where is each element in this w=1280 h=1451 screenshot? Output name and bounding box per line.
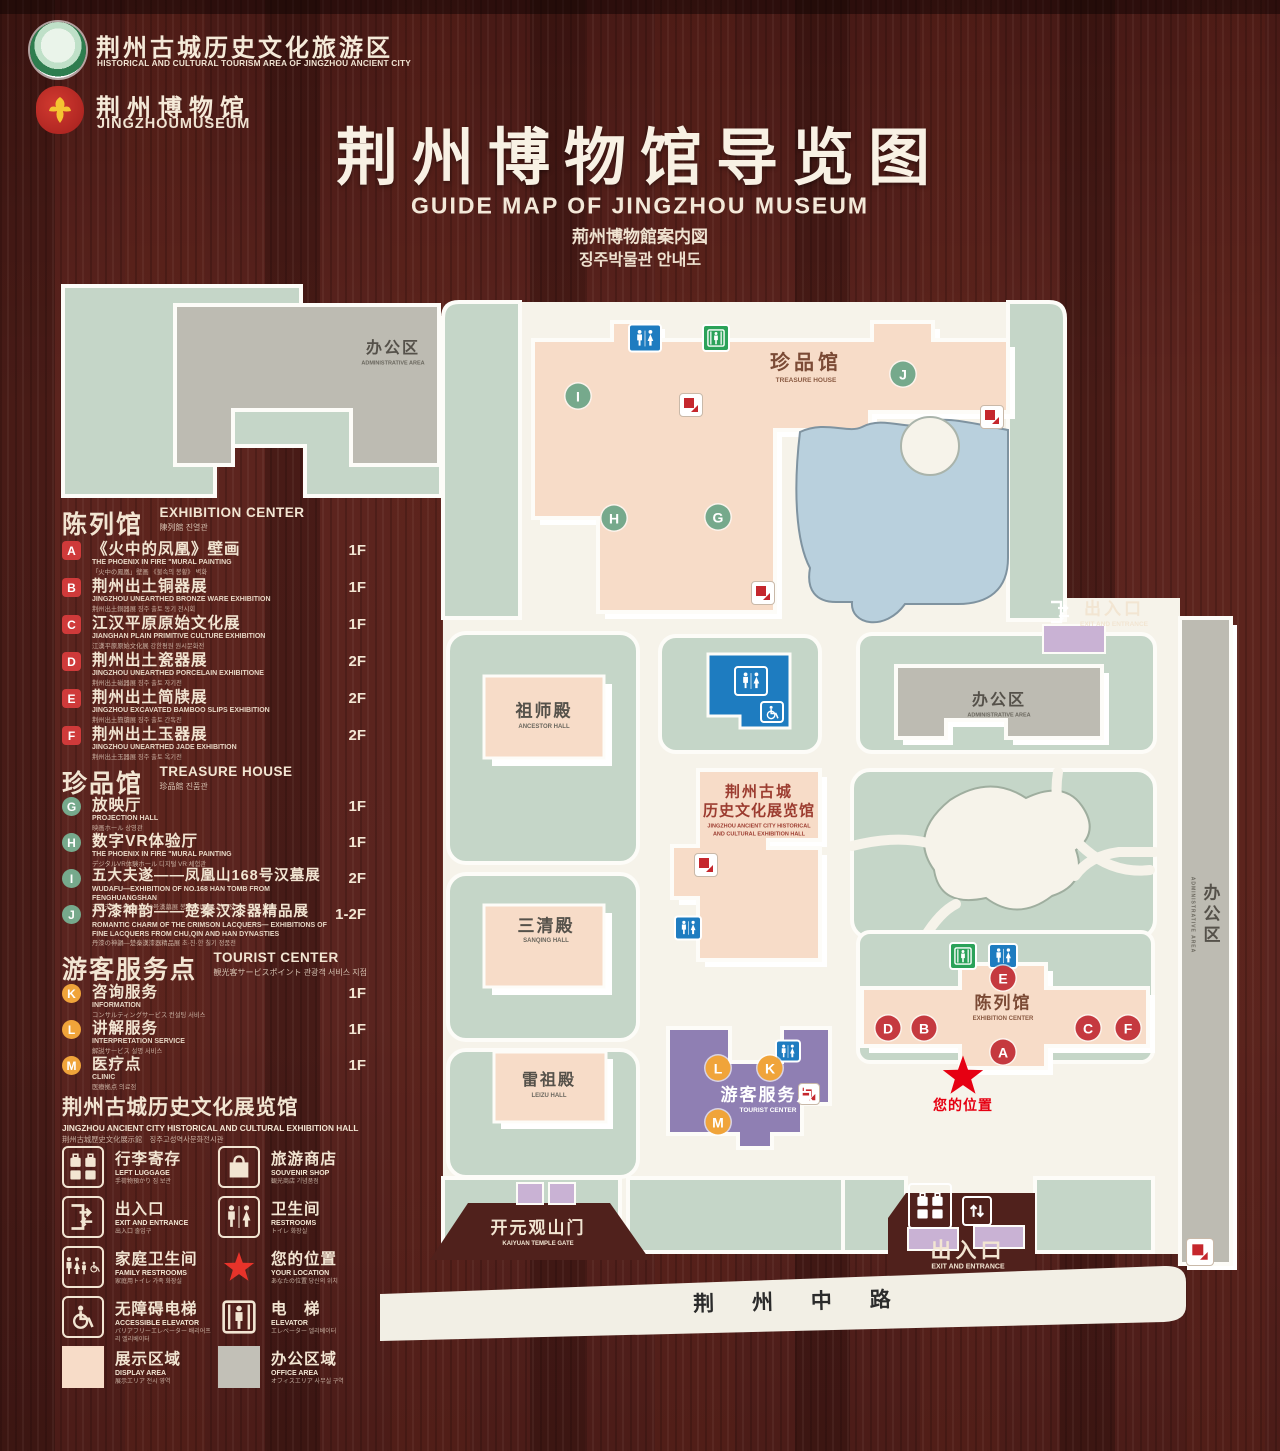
kaiyuan-gate-label: 开元观山门 — [491, 1220, 586, 1237]
hall-note-en: JINGZHOU ANCIENT CITY HISTORICAL AND CUL… — [62, 1123, 368, 1133]
badge-B: B — [62, 578, 81, 597]
icon-cn: 无障碍电梯 — [115, 1297, 212, 1319]
legend-item-B: B 荆州出土铜器展 JINGZHOU UNEARTHED BRONZE WARE… — [62, 578, 368, 613]
item-sub: 「火中の鳳凰」壁画 《불속의 봉황》 벽화 — [92, 569, 330, 577]
item-cn: 五大夫遂——凤凰山168号汉墓展 — [92, 869, 330, 885]
legend-item-L: L 讲解服务 INTERPRETATION SERVICE 解説サービス 설명 … — [62, 1020, 368, 1055]
item-floor: 1-2F — [335, 906, 366, 923]
item-sub: 荆州出土簡牘展 징주 출토 간독전 — [92, 717, 330, 725]
icon-en: YOUR LOCATION — [271, 1270, 368, 1278]
item-sub: 丹漆の神韻—楚秦漢漆器精品展 초·진·한 칠기 정품전 — [92, 940, 330, 948]
item-floor: 2F — [348, 727, 366, 744]
icon-en: FAMILY RESTROOMS — [115, 1270, 212, 1278]
marker-J: J — [891, 362, 916, 387]
section-title-en: TOURIST CENTER — [213, 950, 367, 965]
item-sub: 映画ホール 상영관 — [92, 825, 330, 833]
ancestor-hall-label: 祖师殿 — [516, 703, 573, 720]
section-title-sub: 観光客サービスポイント 관광객 서비스 지점 — [213, 967, 367, 978]
office-strip-label: ADMINISTRATIVE AREA 办公区 — [1190, 877, 1223, 954]
restroom-icon — [734, 666, 768, 696]
badge-J: J — [62, 905, 81, 924]
icon-sub: 出入口 출입구 — [115, 1229, 212, 1236]
item-floor: 1F — [348, 1057, 366, 1074]
treasure-house-label: 珍品馆 — [770, 353, 842, 373]
icon-sub: オフィスエリア 사무실 구역 — [271, 1379, 368, 1386]
item-floor: 1F — [348, 1021, 366, 1038]
legend-item-H: H 数字VR体验厅 THE PHOENIX IN FIRE "MURAL PAI… — [62, 833, 368, 868]
item-sub: 解説サービス 설명 서비스 — [92, 1048, 330, 1056]
item-en: JINGZHOU UNEARTHED JADE EXHIBITION — [92, 744, 330, 753]
marker-G: G — [706, 505, 731, 530]
legend-item-K: K 咨询服务 INFORMATION コンサルティングサービス 컨설팅 서비스 … — [62, 984, 368, 1019]
item-cn: 数字VR体验厅 — [92, 833, 330, 850]
legend-item-E: E 荆州出土简牍展 JINGZHOU EXCAVATED BAMBOO SLIP… — [62, 689, 368, 724]
item-en: PROJECTION HALL — [92, 815, 330, 824]
legend-your-location: 您的位置 YOUR LOCATION あなたの位置 당신의 위치 — [218, 1246, 368, 1294]
exit-bottom-label: 出入口 — [931, 1241, 1006, 1262]
item-cn: 讲解服务 — [92, 1020, 330, 1037]
icon-en: EXIT AND ENTRANCE — [115, 1220, 212, 1228]
item-cn: 咨询服务 — [92, 984, 330, 1001]
marker-K: K — [758, 1056, 783, 1081]
section-title: 游客服务点 — [62, 950, 197, 986]
family-restroom-icon — [62, 1246, 104, 1288]
icon-sub: 手荷物預かり 짐 보관 — [115, 1179, 212, 1186]
item-cn: 《火中的凤凰》壁画 — [92, 541, 330, 558]
exit-icon — [1048, 599, 1074, 625]
item-en: JINGZHOU UNEARTHED BRONZE WARE EXHIBITIO… — [92, 596, 330, 605]
ancestor-hall-label-en: ANCESTOR HALL — [518, 724, 569, 730]
item-cn: 荆州出土铜器展 — [92, 578, 330, 595]
green-bottom-mid — [628, 1178, 843, 1252]
accessible-icon — [760, 701, 784, 723]
item-floor: 2F — [348, 653, 366, 670]
leizu-hall-label: 雷祖殿 — [522, 1073, 576, 1089]
accessible-elevator-icon — [62, 1296, 104, 1338]
marker-F: F — [1116, 1016, 1141, 1041]
icon-sub: 家庭用トイレ 가족 화장실 — [115, 1279, 212, 1286]
escalator-icon — [1186, 1238, 1214, 1266]
restroom-icon — [218, 1196, 260, 1238]
badge-G: G — [62, 797, 81, 816]
item-floor: 1F — [348, 985, 366, 1002]
item-cn: 荆州出土瓷器展 — [92, 652, 330, 669]
item-en: JINGZHOU UNEARTHED PORCELAIN EXHIBITIONE — [92, 670, 330, 679]
item-sub: 荆州出土玉器展 징주 출토 옥기전 — [92, 754, 330, 762]
restroom-icon — [628, 324, 662, 353]
badge-D: D — [62, 652, 81, 671]
tourist-center-label: 游客服务点 — [721, 1087, 816, 1104]
left-luggage-icon — [62, 1146, 104, 1188]
icon-sub: 展示エリア 전시 영역 — [115, 1379, 212, 1386]
icon-cn: 行李寄存 — [115, 1147, 212, 1169]
item-sub: 荆州出土磁器展 징주 출토 자기전 — [92, 680, 330, 688]
item-floor: 1F — [348, 579, 366, 596]
display-area-swatch — [62, 1346, 104, 1388]
item-en: JIANGHAN PLAIN PRIMITIVE CULTURE EXHIBIT… — [92, 633, 330, 642]
icon-sub: あなたの位置 당신의 위치 — [271, 1279, 368, 1286]
office-strip-label-en: ADMINISTRATIVE AREA — [1190, 877, 1196, 954]
badge-I: I — [62, 869, 81, 888]
exit-top-label: 出入口 — [1084, 601, 1144, 618]
icon-cn: 家庭卫生间 — [115, 1247, 212, 1269]
marker-B: B — [912, 1016, 937, 1041]
hall-note: 荆州古城历史文化展览馆 JINGZHOU ANCIENT CITY HISTOR… — [62, 1090, 368, 1145]
escalator-icon — [694, 853, 718, 877]
legend-restrooms: 卫生间 RESTROOMS トイレ 화장실 — [218, 1196, 368, 1244]
history-hall-label-en1: JINGZHOU ANCIENT CITY HISTORICAL — [707, 824, 810, 830]
item-cn: 荆州出土简牍展 — [92, 689, 330, 706]
section-title-sub: 珍品館 진품관 — [159, 781, 292, 792]
kaiyuan-gate-label-en: KAIYUAN TEMPLE GATE — [502, 1241, 573, 1247]
elevator-icon — [702, 324, 730, 352]
gate-booth-left2 — [549, 1183, 575, 1204]
section-title-sub: 陳列館 진열관 — [159, 522, 304, 533]
exhibition-center-label-en: EXHIBITION CENTER — [973, 1016, 1034, 1022]
icon-en: DISPLAY AREA — [115, 1370, 212, 1378]
office-area-swatch — [218, 1346, 260, 1388]
item-en: CLINIC — [92, 1074, 330, 1083]
badge-L: L — [62, 1020, 81, 1039]
shopping-bag-icon — [218, 1146, 260, 1188]
green-strip-left — [443, 302, 520, 618]
green-strip-right — [1008, 302, 1065, 620]
badge-H: H — [62, 833, 81, 852]
legend-item-F: F 荆州出土玉器展 JINGZHOU UNEARTHED JADE EXHIBI… — [62, 726, 368, 761]
item-cn: 江汉平原原始文化展 — [92, 615, 330, 632]
exit-top-label-en: EXIT AND ENTRANCE — [1080, 622, 1148, 629]
guide-map-poster: 荆州古城历史文化旅游区 HISTORICAL AND CULTURAL TOUR… — [0, 0, 1280, 1451]
exit-bottom-label-en: EXIT AND ENTRANCE — [931, 1264, 1004, 1271]
history-hall-label-en2: AND CULTURAL EXHIBITION HALL — [713, 832, 805, 838]
marker-D: D — [876, 1016, 901, 1041]
legend-office-area: 办公区域 OFFICE AREA オフィスエリア 사무실 구역 — [218, 1346, 368, 1394]
item-sub: コンサルティングサービス 컨설팅 서비스 — [92, 1012, 330, 1020]
section-exhibition-center: 陈列馆 EXHIBITION CENTER 陳列館 진열관 — [62, 505, 304, 541]
item-floor: 1F — [348, 798, 366, 815]
tourist-center-label-en: TOURIST CENTER — [740, 1108, 797, 1115]
admin-top-label: 办公区 — [366, 341, 420, 357]
marker-I: I — [566, 384, 591, 409]
marker-E: E — [991, 966, 1016, 991]
legend-panel: 陈列馆 EXHIBITION CENTER 陳列館 진열관 A 《火中的凤凰》壁… — [62, 0, 368, 1451]
office-strip-label-cn: 办公区 — [1198, 884, 1223, 947]
escalator-icon — [980, 405, 1004, 429]
hall-note-sub: 荆州古城歴史文化展示館 징주고성역사문화전시관 — [62, 1135, 368, 1145]
item-en: THE PHOENIX IN FIRE "MURAL PAINTING — [92, 559, 330, 568]
item-cn: 荆州出土玉器展 — [92, 726, 330, 743]
item-floor: 1F — [348, 834, 366, 851]
item-en: INFORMATION — [92, 1002, 330, 1011]
section-title: 珍品馆 — [62, 764, 143, 800]
badge-C: C — [62, 615, 81, 634]
escalator-icon — [751, 581, 775, 605]
exhibition-center-label: 陈列馆 — [975, 995, 1032, 1012]
icon-en: SOUVENIR SHOP — [271, 1170, 368, 1178]
icon-en: RESTROOMS — [271, 1220, 368, 1228]
your-location-label: 您的位置 — [933, 1098, 993, 1112]
icon-cn: 电 梯 — [271, 1297, 368, 1319]
section-title-en: EXHIBITION CENTER — [159, 505, 304, 520]
icon-en: OFFICE AREA — [271, 1370, 368, 1378]
item-sub: 江漢平原原始文化展 강한평원 원시문화전 — [92, 643, 330, 651]
legend-exit: 出入口 EXIT AND ENTRANCE 出入口 출입구 — [62, 1196, 212, 1244]
history-hall-label-2: 历史文化展览馆 — [703, 804, 815, 819]
icon-sub: バリアフリーエレベーター 배리어프리 엘리베이터 — [115, 1329, 212, 1343]
badge-E: E — [62, 689, 81, 708]
marker-C: C — [1076, 1016, 1101, 1041]
admin-top-label-en: ADMINISTRATIVE AREA — [361, 361, 424, 367]
legend-item-M: M 医疗点 CLINIC 医療拠点 의료점 1F — [62, 1056, 368, 1091]
icon-en: LEFT LUGGAGE — [115, 1170, 212, 1178]
legend-item-D: D 荆州出土瓷器展 JINGZHOU UNEARTHED PORCELAIN E… — [62, 652, 368, 687]
legend-elevator: 电 梯 ELEVATOR エレベーター 엘리베이터 — [218, 1296, 368, 1344]
history-hall-label-1: 荆州古城 — [725, 785, 793, 800]
admin-right-label: 办公区 — [972, 693, 1026, 709]
icon-sub: エレベーター 엘리베이터 — [271, 1329, 368, 1336]
legend-item-C: C 江汉平原原始文化展 JIANGHAN PLAIN PRIMITIVE CUL… — [62, 615, 368, 650]
badge-K: K — [62, 984, 81, 1003]
left-luggage-icon — [908, 1183, 952, 1229]
location-star-icon — [218, 1246, 260, 1288]
green-bottom-right2 — [1035, 1178, 1153, 1252]
item-cn: 丹漆神韵——楚秦汉漆器精品展 — [92, 905, 330, 921]
item-cn: 医疗点 — [92, 1056, 330, 1073]
section-title-en: TREASURE HOUSE — [159, 764, 292, 779]
section-title: 陈列馆 — [62, 505, 143, 541]
legend-item-A: A 《火中的凤凰》壁画 THE PHOENIX IN FIRE "MURAL P… — [62, 541, 368, 576]
legend-item-J: J 丹漆神韵——楚秦汉漆器精品展 ROMANTIC CHARM OF THE C… — [62, 905, 368, 948]
legend-family-restrooms: 家庭卫生间 FAMILY RESTROOMS 家庭用トイレ 가족 화장실 — [62, 1246, 212, 1294]
marker-H: H — [602, 506, 627, 531]
legend-item-G: G 放映厅 PROJECTION HALL 映画ホール 상영관 1F — [62, 797, 368, 832]
marker-L: L — [706, 1056, 731, 1081]
item-cn: 放映厅 — [92, 797, 330, 814]
item-floor: 1F — [348, 616, 366, 633]
icon-cn: 旅游商店 — [271, 1147, 368, 1169]
round-plaza — [901, 417, 959, 475]
icon-cn: 出入口 — [115, 1197, 212, 1219]
icon-cn: 办公区域 — [271, 1347, 368, 1369]
item-sub: 荆州出土銅器展 징주 출토 동기 전시회 — [92, 606, 330, 614]
road-label: 荆 州 中 路 — [693, 1289, 907, 1315]
updown-arrows-icon — [962, 1196, 992, 1226]
icon-cn: 展示区域 — [115, 1347, 212, 1369]
icon-sub: トイレ 화장실 — [271, 1229, 368, 1236]
icon-en: ACCESSIBLE ELEVATOR — [115, 1320, 212, 1328]
item-floor: 1F — [348, 542, 366, 559]
section-tourist-center: 游客服务点 TOURIST CENTER 観光客サービスポイント 관광객 서비스… — [62, 950, 367, 986]
escalator-icon — [679, 393, 703, 417]
restroom-icon — [674, 916, 702, 941]
sanqing-hall-label-en: SANQING HALL — [523, 938, 569, 944]
elevator-icon — [949, 942, 977, 970]
sanqing-hall-label: 三清殿 — [518, 918, 575, 935]
hall-note-cn: 荆州古城历史文化展览馆 — [62, 1090, 368, 1120]
gate-booth-topright — [1043, 625, 1105, 653]
leizu-hall-label-en: LEIZU HALL — [532, 1093, 567, 1099]
item-en: THE PHOENIX IN FIRE "MURAL PAINTING — [92, 851, 330, 860]
item-en: JINGZHOU EXCAVATED BAMBOO SLIPS EXHIBITI… — [92, 707, 330, 716]
legend-accessible-elevator: 无障碍电梯 ACCESSIBLE ELEVATOR バリアフリーエレベーター 배… — [62, 1296, 212, 1344]
item-en: INTERPRETATION SERVICE — [92, 1038, 330, 1047]
treasure-house-label-en: TREASURE HOUSE — [776, 378, 837, 385]
badge-M: M — [62, 1056, 81, 1075]
icon-cn: 卫生间 — [271, 1197, 368, 1219]
item-floor: 2F — [348, 870, 366, 887]
legend-souvenir-shop: 旅游商店 SOUVENIR SHOP 観光商店 기념품점 — [218, 1146, 368, 1194]
section-treasure-house: 珍品馆 TREASURE HOUSE 珍品館 진품관 — [62, 764, 292, 800]
your-location-star — [942, 1056, 984, 1101]
gate-booth-left1 — [517, 1183, 543, 1204]
item-en: ROMANTIC CHARM OF THE CRIMSON LACQUERS— … — [92, 922, 330, 940]
item-floor: 2F — [348, 690, 366, 707]
marker-A: A — [991, 1040, 1016, 1065]
badge-F: F — [62, 726, 81, 745]
icon-cn: 您的位置 — [271, 1247, 368, 1269]
item-en: WUDAFU—EXHIBITION OF NO.168 HAN TOMB FRO… — [92, 886, 330, 904]
badge-A: A — [62, 541, 81, 560]
icon-sub: 観光商店 기념품점 — [271, 1179, 368, 1186]
legend-display-area: 展示区域 DISPLAY AREA 展示エリア 전시 영역 — [62, 1346, 212, 1394]
legend-left-luggage: 行李寄存 LEFT LUGGAGE 手荷物預かり 짐 보관 — [62, 1146, 212, 1194]
admin-right-label-en: ADMINISTRATIVE AREA — [967, 713, 1030, 719]
elevator-icon — [218, 1296, 260, 1338]
exit-icon — [62, 1196, 104, 1238]
icon-en: ELEVATOR — [271, 1320, 368, 1328]
marker-M: M — [706, 1110, 731, 1135]
